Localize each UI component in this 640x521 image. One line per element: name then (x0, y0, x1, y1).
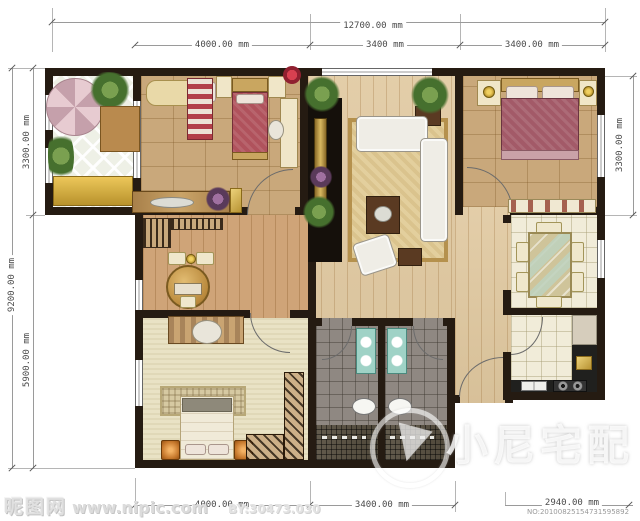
wall-right-1 (597, 68, 605, 115)
bed-pillow (185, 444, 206, 455)
wall-dining-left (503, 290, 511, 308)
tea-book (174, 283, 202, 295)
wall-left-lower-3 (135, 406, 143, 468)
lamp (483, 86, 495, 98)
wall-kitchen-left (503, 352, 511, 395)
bed-pillow (208, 444, 229, 455)
balcony-mat (53, 176, 133, 206)
lamp (583, 86, 594, 97)
bed-sheet (501, 150, 579, 160)
wardrobe (246, 434, 284, 460)
window-master (135, 360, 143, 406)
bed-headboard (232, 78, 268, 92)
washbasin (387, 328, 407, 374)
balcony-table (100, 106, 140, 152)
brand-watermark: 小尼宅配 (446, 423, 634, 469)
ext-line (455, 481, 456, 512)
dim-label-top-total: 12700.00 mm (340, 21, 406, 31)
nipic-watermark-url: www.nipic.com (72, 499, 208, 517)
ext-line (505, 492, 506, 505)
wall-top-left (45, 68, 322, 76)
wall-dining-kitchen (503, 308, 605, 315)
wall-master-top-2 (290, 310, 316, 318)
platter (150, 197, 194, 208)
wall-kitchen-bottom (503, 392, 605, 400)
window-living-top (322, 68, 432, 76)
dim-label-bottom-3: 2940.00 mm (542, 498, 602, 508)
plant (302, 194, 336, 230)
tea-chair (168, 252, 186, 265)
dining-chair (571, 242, 584, 262)
rug (187, 78, 213, 140)
wall-left-lower-1 (135, 215, 143, 280)
kitchen-counter (572, 315, 597, 345)
nightstand-orange (161, 440, 180, 460)
sofa (356, 116, 428, 152)
dim-label-top-2: 3400 mm (363, 40, 407, 50)
wall-top-right (432, 68, 605, 76)
dining-table (528, 232, 572, 298)
tv-frame (314, 118, 327, 204)
dim-line-right (633, 76, 634, 215)
plant (303, 74, 341, 114)
window-dining (597, 240, 605, 278)
ext-line (8, 468, 135, 469)
plant-flower (309, 166, 333, 188)
statue (230, 188, 242, 213)
window-bedroom1 (597, 115, 605, 177)
toilet (352, 398, 376, 415)
wall-dining-left-stub (503, 215, 511, 223)
nipic-watermark-by: BY:30473.030 (228, 502, 320, 516)
nipic-watermark-cn: 昵图网 (4, 497, 67, 517)
ext-line (52, 8, 53, 52)
bed-footboard (232, 152, 268, 160)
window-tearoom (135, 280, 143, 312)
wall-hall-corner (455, 207, 463, 215)
dim-label-bottom-2: 3400.00 mm (352, 500, 412, 510)
dining-chair (571, 272, 584, 292)
dim-label-top-1: 4000.00 mm (192, 40, 252, 50)
shower-left-floor (316, 425, 378, 460)
wall-right-3 (597, 278, 605, 400)
plant (410, 74, 450, 116)
dim-label-left-1: 3300.00 mm (22, 112, 32, 172)
dim-label-left-total: 9200.00 mm (7, 255, 17, 315)
wall-balcony-bottom (45, 207, 143, 215)
wall-bath-top-1 (316, 318, 322, 326)
dim-line-top-total (52, 22, 605, 23)
wall-left-lower-2 (135, 312, 143, 360)
tea-chair (196, 252, 214, 265)
nightstand (216, 76, 232, 98)
dim-label-top-3: 3400.00 mm (502, 40, 562, 50)
bookshelf (143, 218, 171, 248)
dining-chair (536, 296, 562, 308)
tea-chair (180, 296, 196, 308)
bookshelf (171, 218, 223, 230)
desk-chair (268, 120, 284, 140)
washbasin (356, 328, 376, 374)
ext-line (8, 68, 45, 69)
plant (86, 72, 134, 108)
dim-label-left-2: 5900.00 mm (22, 330, 32, 390)
serial-number: NO:20100825154731595892 (527, 508, 629, 516)
dim-line-left-segs (33, 68, 34, 468)
kitchen-item (576, 356, 592, 370)
master-desk-chair (192, 320, 222, 344)
towel-rail (322, 436, 366, 439)
bed-pillow (236, 94, 264, 104)
dim-label-right-1: 3300.00 mm (615, 115, 625, 175)
tray (374, 206, 392, 222)
side-table (398, 248, 422, 266)
plant-flower (206, 186, 230, 212)
kitchen-stove (553, 380, 587, 392)
master-bed-band (182, 398, 232, 412)
kitchen-sink (521, 381, 547, 391)
sideboard (508, 199, 596, 213)
flower (283, 66, 301, 84)
wall-bath-top-2 (352, 318, 413, 326)
wall-balcony-bed2-1 (133, 76, 141, 101)
wall-living-bed1 (455, 76, 463, 215)
wardrobe (284, 372, 304, 460)
wall-master-bath (308, 318, 316, 468)
sofa (420, 138, 448, 242)
floor-plan-canvas: 12700.00 mm4000.00 mm3400 mm3400.00 mm33… (0, 0, 640, 521)
ext-line (26, 215, 45, 216)
